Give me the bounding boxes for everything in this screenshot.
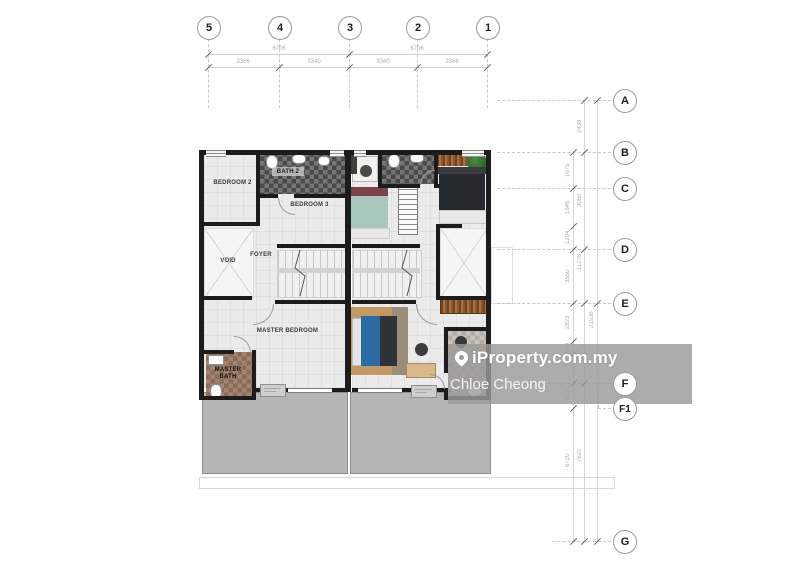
wall [277,244,348,248]
grid-row-bubble: A [613,89,637,113]
side-ledge-outline [491,247,513,304]
dimension-text: 3366 [432,59,472,65]
sink [318,156,330,166]
sliding-door [288,388,332,393]
dimension-chain [584,100,585,541]
grid-row-bubble: C [613,177,637,201]
grid-column-bubble: 1 [476,16,500,40]
balcony-right [350,392,491,474]
grid-row-label: C [621,183,629,195]
grid-column-label: 4 [277,22,283,34]
grid-row-label: G [621,536,630,548]
grid-line [487,39,488,108]
grid-row-bubble: B [613,141,637,165]
bed-pillow-strip [346,187,388,196]
wall [352,244,420,248]
dimension-text: 6706 [397,46,437,52]
dimension-text: 7620 [577,438,583,472]
grid-line [208,39,209,108]
grid-line [497,249,611,250]
balcony-left [202,392,348,474]
window [354,150,366,157]
dimension-text: 3050 [577,183,583,217]
dimension-text: 3340 [294,59,334,65]
bed-duvet-dark [439,174,485,210]
grid-row-bubble: F1 [613,397,637,421]
grid-row-label: A [621,95,629,107]
watermark-agent: Chloe Cheong [450,376,546,393]
window [462,150,484,157]
grid-row-label: F1 [619,404,631,415]
dimension-text: 6706 [259,46,299,52]
room-label-bath2: BATH 2 [268,169,308,176]
sink [208,355,224,365]
sink [292,154,306,164]
chair [360,165,372,177]
grid-row-label: F [622,378,629,390]
bed-duvet-blue [361,316,380,366]
grid-row-label: E [621,298,628,310]
wall [199,296,252,300]
grid-line [349,39,350,108]
window [206,150,226,157]
bed-headboard [438,167,486,174]
wall [378,152,382,188]
wall [352,300,416,304]
dimension-text: 1675 [565,153,571,187]
party-wall [345,150,351,392]
grid-row-label: B [621,147,629,159]
ac-ledge-label [411,385,437,398]
dimension-text: 2438 [577,109,583,143]
grid-row-label: D [621,244,629,256]
grid-column-label: 3 [347,22,353,34]
wall [444,327,491,331]
watermark-brand: iProperty.com.my [472,348,618,368]
stair-rail-left [277,268,345,273]
wall [256,152,260,198]
grid-column-label: 1 [485,22,491,34]
dimension-text: 6720 [565,443,571,477]
stair-break-line [293,250,307,296]
staircase-left [277,250,347,298]
lower-roof-outline [199,477,615,489]
sliding-door [358,388,402,393]
wall [378,184,420,188]
floor-plan-sheet: 5 4 3 2 1 6706 6706 3366 3340 3340 3366 … [0,0,800,566]
dimension-text: 1846 [565,190,571,224]
wall [199,150,204,400]
grid-column-label: 2 [415,22,421,34]
grid-row-bubble: G [613,530,637,554]
grid-line [598,408,611,409]
bed-duvet-teal [346,196,388,228]
stair-break-line [400,250,414,296]
dimension-text: 21536 [589,303,595,337]
bed-foot [346,228,390,239]
wall [275,300,348,304]
bed-sheet [439,210,487,224]
toilet [388,154,400,168]
room-label-bedroom2: BEDROOM 2 [205,180,260,187]
grid-line [497,152,611,153]
wall [436,224,440,300]
room-label-master-bath: MASTER BATH [207,367,249,381]
grid-column-bubble: 2 [406,16,430,40]
grid-row-bubble: E [613,292,637,316]
wardrobe-hangers [398,187,418,235]
chair [415,343,428,356]
dimension-text: 1204 [565,220,571,254]
wall [436,296,491,300]
dimension-text: 11278 [577,245,583,279]
desk-panel [350,154,357,174]
dimension-chain [597,100,598,541]
void-area-right [440,228,488,298]
wall [252,350,256,400]
dimension-text: 3366 [223,59,263,65]
window [330,150,344,157]
wall [256,198,260,226]
wall [199,222,260,226]
room-label-bedroom3: BEDROOM 3 [282,202,337,209]
room-label-master-bedroom: MASTER BEDROOM [245,328,330,335]
grid-column-bubble: 4 [268,16,292,40]
wall [332,388,348,392]
grid-row-bubble: D [613,238,637,262]
bed-duvet-dark [380,316,397,366]
grid-column-bubble: 5 [197,16,221,40]
dimension-text: 3340 [363,59,403,65]
wall [204,350,234,354]
ac-ledge-label [260,384,286,397]
grid-line [497,100,611,101]
dimension-text: 3550 [565,259,571,293]
room-label-foyer: FOYER [246,252,276,259]
wall [199,396,256,400]
wardrobe [440,299,487,314]
grid-column-bubble: 3 [338,16,362,40]
room-label-void: VOID [207,258,249,265]
grid-row-bubble: F [613,372,637,396]
grid-line [497,188,611,189]
wall [294,194,348,198]
grid-column-label: 5 [206,22,212,34]
